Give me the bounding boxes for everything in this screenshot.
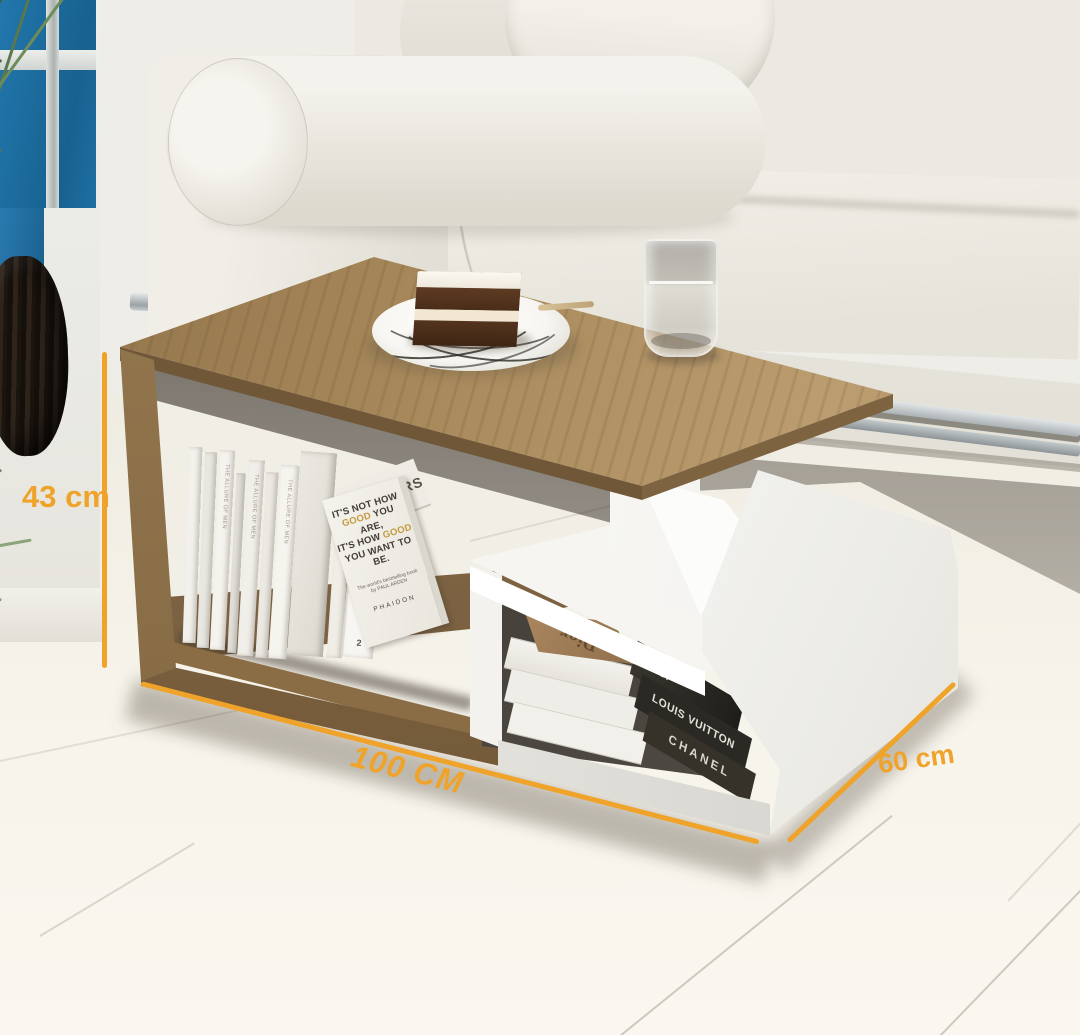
cake-slice <box>412 271 521 347</box>
height-dimension-label: 43 cm <box>22 479 110 515</box>
cake-layer-brown <box>415 287 520 311</box>
glass-bottom-refraction <box>651 333 711 349</box>
product-photo-scene: THE ALLURE OF MEN THE ALLURE OF MEN THE … <box>0 0 1080 1035</box>
cake-icing-top <box>417 271 522 289</box>
cake-layer-brown <box>412 320 518 347</box>
water-glass <box>644 239 718 357</box>
sofa-bolster-end-cap <box>168 58 308 226</box>
glass-water-line <box>649 281 713 284</box>
window-mullion-vertical <box>46 0 59 208</box>
book-spine-label: THE ALLURE OF MEN <box>221 464 230 529</box>
book-spine-label: THE ALLURE OF MEN <box>249 474 259 539</box>
windowsill <box>0 588 104 642</box>
book-spine-label: THE ALLURE OF MEN <box>282 479 293 544</box>
